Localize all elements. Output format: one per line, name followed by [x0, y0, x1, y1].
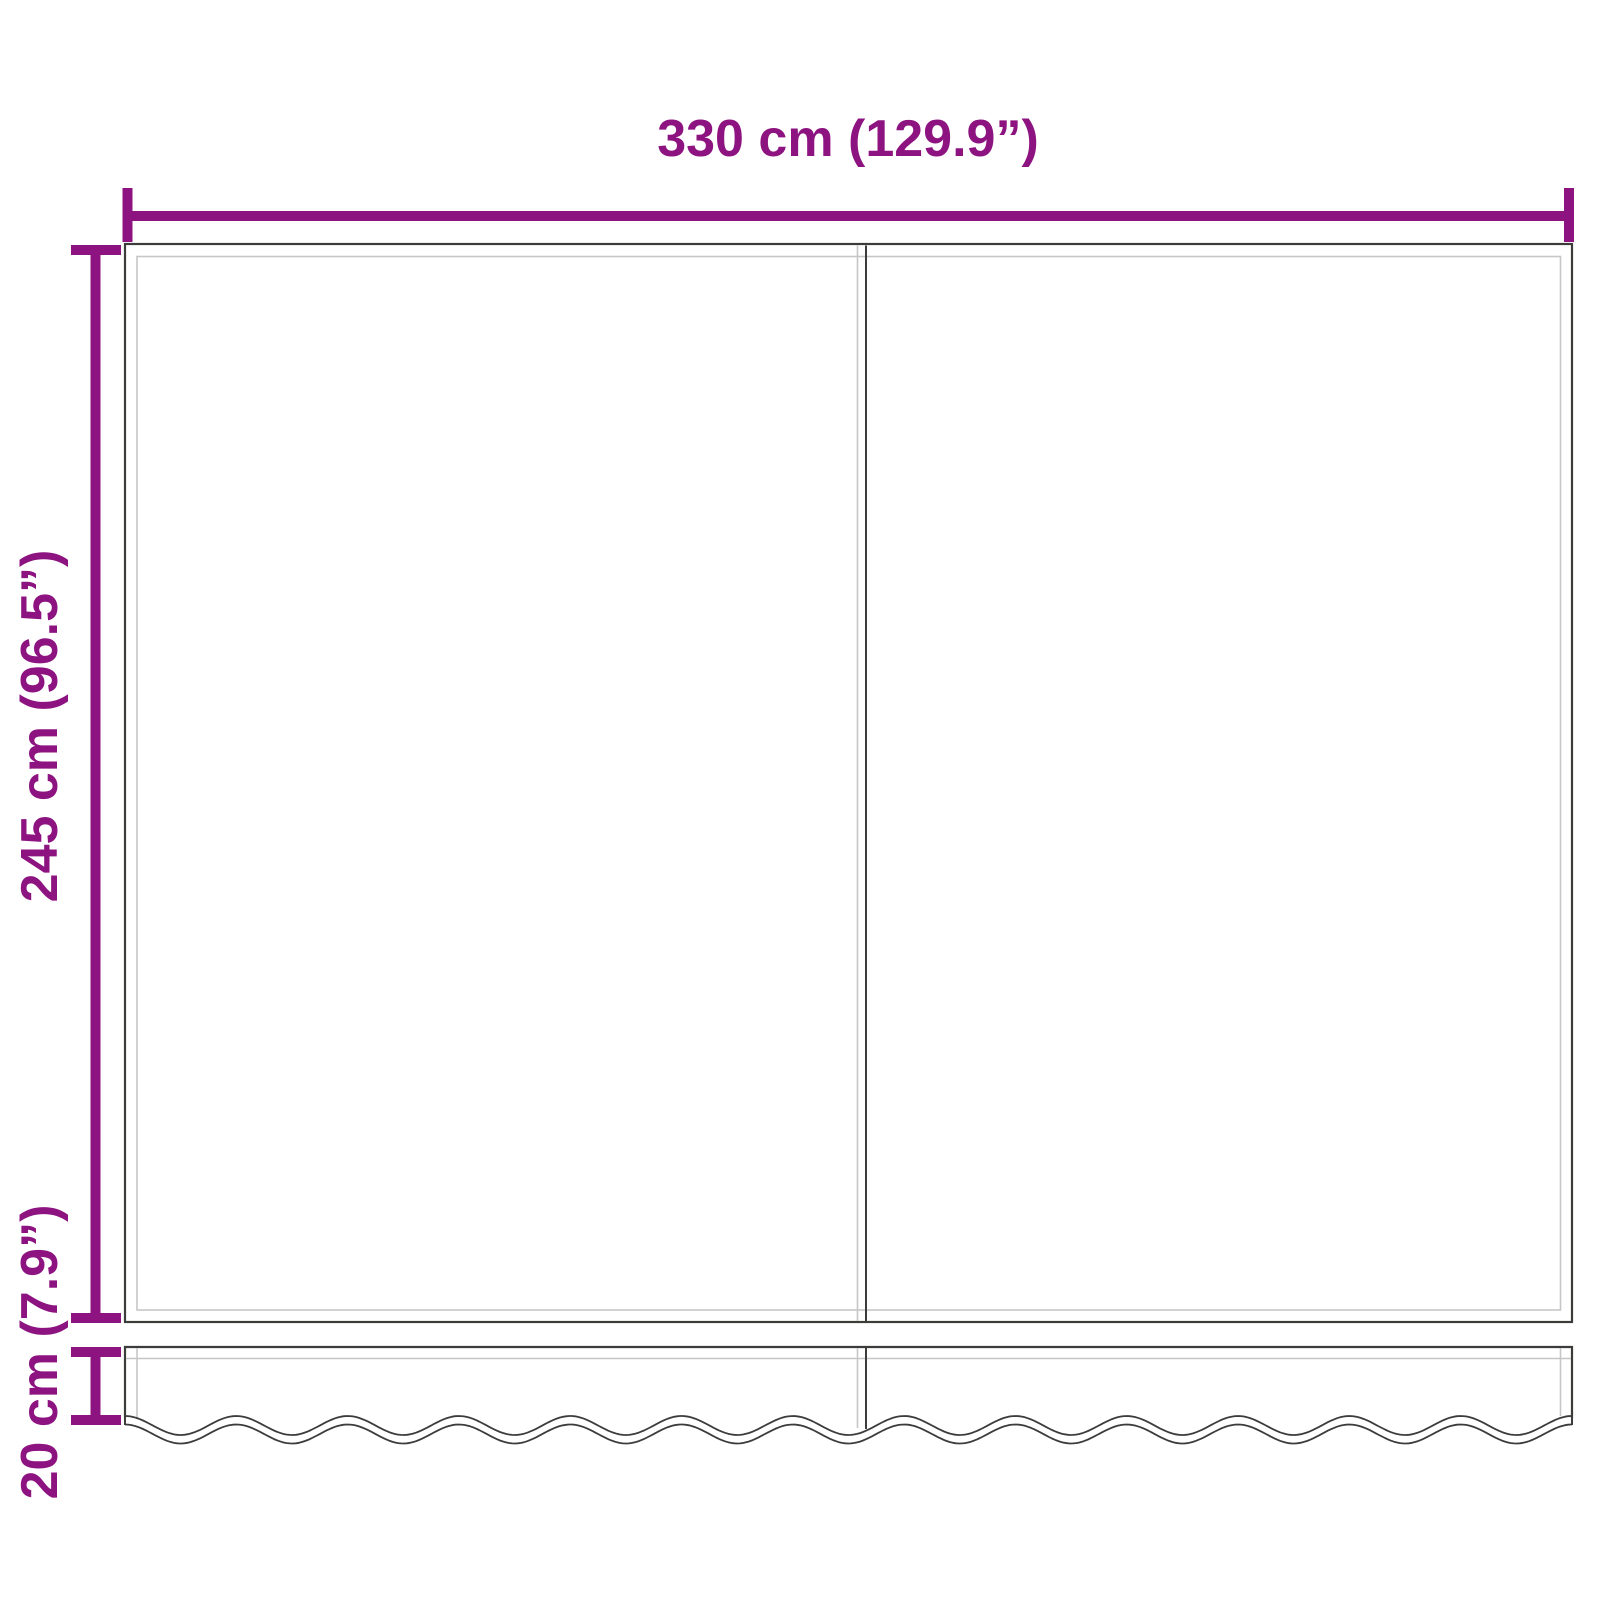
valance-wave-edge-inner	[125, 1425, 1572, 1444]
valance-dimension-line	[71, 1347, 121, 1425]
height-dim-bar	[91, 245, 101, 1323]
width-dim-bar	[123, 211, 1575, 221]
fabric-panel-outline	[125, 244, 1572, 1322]
valance-strip	[124, 1346, 1573, 1444]
valance-dim-bar	[91, 1347, 101, 1425]
height-dimension-line	[71, 245, 121, 1323]
width-dimension-line	[123, 188, 1575, 242]
valance-height-dimension-label: 20 cm (7.9”)	[14, 1205, 66, 1500]
height-dimension-label: 245 cm (96.5”)	[14, 550, 66, 903]
fabric-panel-hem-line	[137, 257, 1561, 1311]
awning-fabric-dimension-diagram: 330 cm (129.9”) 245 cm (96.5”) 20 cm (7.…	[0, 0, 1600, 1600]
width-dimension-label: 330 cm (129.9”)	[657, 113, 1039, 165]
fabric-panel	[125, 244, 1572, 1322]
diagram-drawing	[0, 0, 1600, 1600]
